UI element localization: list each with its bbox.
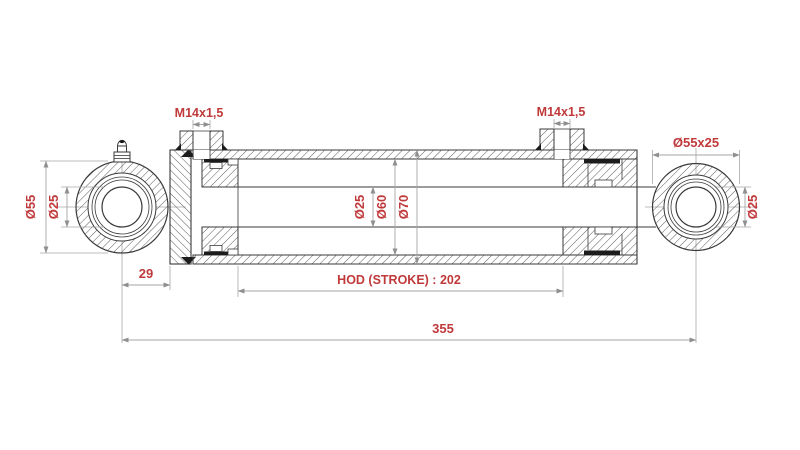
piston	[202, 159, 238, 255]
dim-port-left: M14x1,5	[175, 106, 224, 129]
dim-rod-dia: Ø25	[352, 187, 373, 227]
label-left-eye-bore-dia: Ø25	[46, 195, 61, 220]
left-rod-eye	[76, 140, 168, 253]
dim-barrel-od: Ø70	[396, 150, 417, 264]
label-barrel-outer-dia: Ø70	[396, 195, 411, 220]
label-left-eye-outer-dia: Ø55	[23, 195, 38, 220]
dim-stroke: HOD (STROKE) : 202	[238, 266, 563, 297]
dim-bore-dia: Ø60	[374, 159, 395, 255]
hydraulic-cylinder-drawing: M14x1,5 M14x1,5 Ø55x25 Ø55 Ø25 Ø25 Ø60	[0, 0, 800, 450]
label-stroke-length: HOD (STROKE) : 202	[337, 273, 461, 287]
dim-overall-length: 355	[122, 321, 696, 340]
label-bore-dia: Ø60	[374, 195, 389, 220]
dim-port-right: M14x1,5	[537, 105, 586, 128]
rod-gland	[563, 159, 637, 255]
label-port-left-thread: M14x1,5	[175, 106, 224, 120]
centerlines	[58, 146, 758, 343]
grease-nipple-icon	[114, 140, 130, 162]
label-port-right-thread: M14x1,5	[537, 105, 586, 119]
label-overall-length: 355	[432, 321, 454, 336]
label-rod-dia: Ø25	[352, 195, 367, 220]
label-right-eye-size: Ø55x25	[673, 135, 719, 150]
right-rod-eye	[653, 164, 740, 251]
dim-29: 29	[122, 266, 170, 290]
label-eye-center-to-head: 29	[139, 266, 153, 281]
technical-drawing-page: M14x1,5 M14x1,5 Ø55x25 Ø55 Ø25 Ø25 Ø60	[0, 0, 800, 450]
label-right-eye-bore-dia: Ø25	[745, 195, 760, 220]
cylinder-cap-block	[170, 150, 196, 265]
piston-rod	[238, 187, 656, 227]
